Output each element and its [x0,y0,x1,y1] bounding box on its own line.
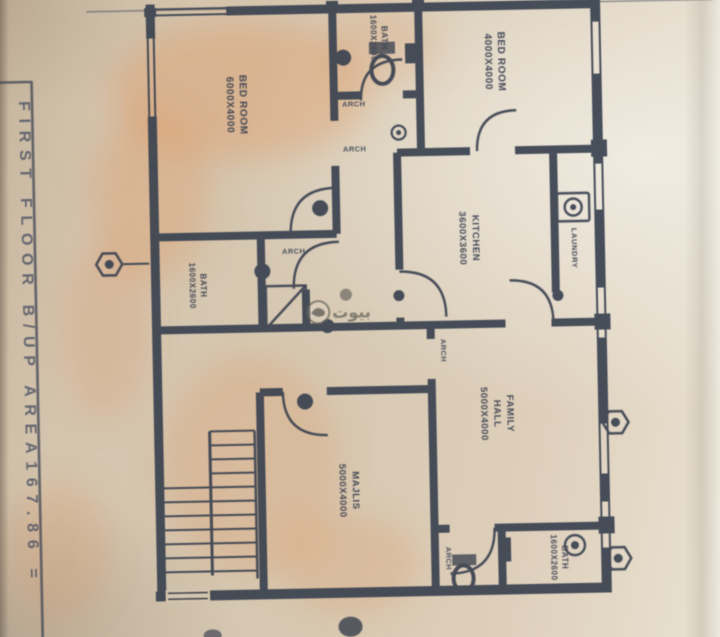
room-dims: 1600X2600 [549,534,559,581]
door-arc [476,110,517,151]
bottom-wall [156,587,612,596]
room-dims: 6000X4000 [223,77,235,134]
cistern-icon [405,43,417,63]
bedroom-right-label: BED ROOM 4000X4000 [482,32,507,92]
room-name: FAMILY [504,395,516,433]
kitchen-label: KITCHEN 3600X3600 [456,211,481,265]
room-dims: 5000X4000 [336,464,348,518]
door-leaf [501,537,511,561]
watermark-blob [338,616,362,636]
door-arc [510,280,554,324]
room-name: BATH [379,26,388,50]
bayut-watermark: بيوت [307,288,371,323]
room-name: BED ROOM [495,32,507,92]
family-hall-label: FAMILY HALL 5000X4000 [478,386,516,441]
room-name: HALL [491,400,503,428]
room-name: KITCHEN [469,215,481,262]
room-dims: 3600X3600 [456,211,468,265]
door-knob [396,130,401,135]
door-arc [399,271,446,318]
arch-annotation: ARCH [343,144,366,153]
room-name: MAJLIS [349,471,361,510]
room-dims: 1600X2600 [368,15,378,62]
watermark-dot [340,289,352,301]
watermark-arabic-text: بيوت [332,304,371,322]
shower-icon [266,285,307,328]
room-name: BATH [198,273,207,297]
room-dims: 4000X4000 [482,33,494,90]
watermark-blob [204,629,222,637]
bottom-window-gap [166,589,210,602]
arch-annotation: ARCH [342,99,365,108]
door-knob [312,200,328,216]
majlis-label: MAJLIS 5000X4000 [336,463,361,517]
floorplan-drawing: FIRST FLOOR B/UP AREA167.86 = [0,0,720,637]
arch-annotation: ARCH [282,246,305,255]
room-dims: 5000X4000 [478,387,490,441]
bath-left-label: BATH 1600X2600 [187,262,208,309]
room-name: BATH [560,545,569,569]
room-name: BED ROOM [236,75,248,135]
floorplan-photo: FIRST FLOOR B/UP AREA167.86 = [0,0,720,637]
room-dims: 1600X2600 [187,263,197,310]
arch-annotation: ARCH [444,547,453,570]
room-name: LAUNDRY [570,228,580,269]
arch-annotation: ARCH [439,339,448,362]
door-knob [393,290,404,301]
washing-machine-icon [557,193,590,222]
door-knob [254,263,270,279]
laundry-label: LAUNDRY [570,228,580,269]
